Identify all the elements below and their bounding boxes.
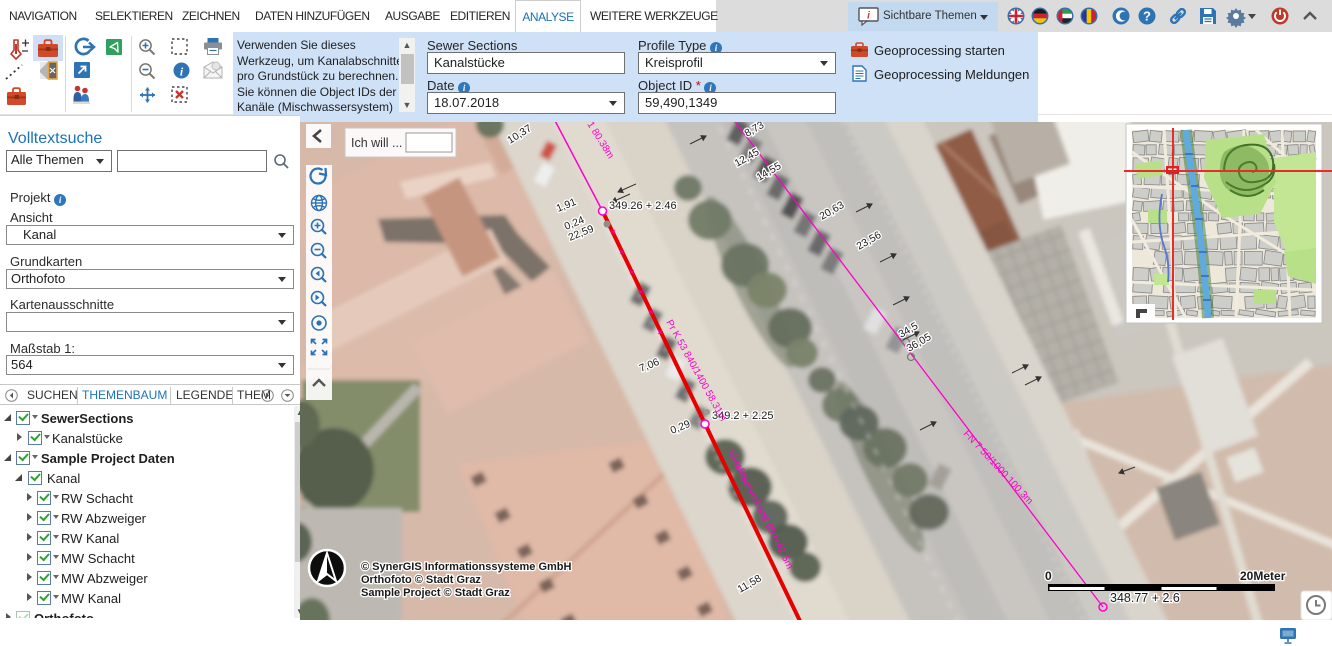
svg-text:Sample Project © Stadt Graz: Sample Project © Stadt Graz <box>361 587 510 599</box>
svg-text:0: 0 <box>1045 569 1052 583</box>
svg-text:348.77 + 2.6: 348.77 + 2.6 <box>1110 591 1180 605</box>
svg-text:Ich will ...: Ich will ... <box>351 136 402 150</box>
svg-text:i: i <box>867 11 870 22</box>
svg-text:© SynerGIS Informationssysteme: © SynerGIS Informationssysteme GmbH <box>361 561 571 573</box>
svg-text:Orthofoto © Stadt Graz: Orthofoto © Stadt Graz <box>361 574 481 586</box>
svg-text:20Meter: 20Meter <box>1240 569 1286 583</box>
svg-text:349.26 + 2.46: 349.26 + 2.46 <box>609 200 677 212</box>
svg-text:?: ? <box>1143 9 1151 24</box>
